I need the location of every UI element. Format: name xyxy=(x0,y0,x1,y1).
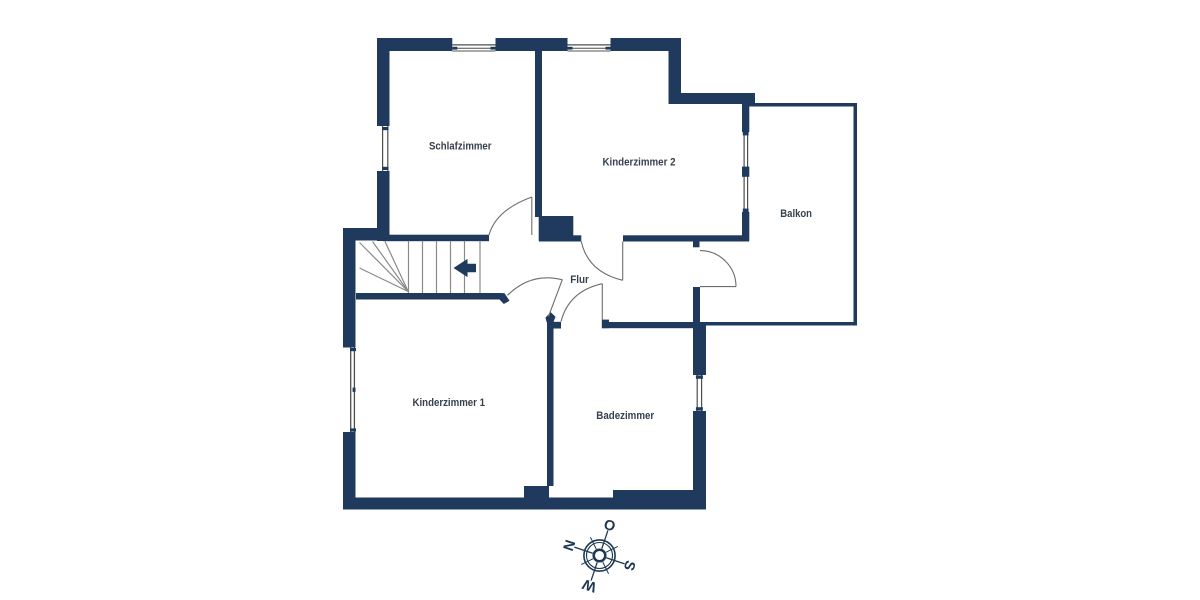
svg-text:Badezimmer: Badezimmer xyxy=(596,410,654,422)
svg-text:Kinderzimmer 2: Kinderzimmer 2 xyxy=(603,157,676,169)
svg-text:W: W xyxy=(580,575,598,595)
svg-text:Flur: Flur xyxy=(570,274,589,286)
svg-text:S: S xyxy=(620,558,638,573)
svg-text:Kinderzimmer 1: Kinderzimmer 1 xyxy=(413,397,486,409)
svg-text:Balkon: Balkon xyxy=(780,208,812,220)
svg-text:O: O xyxy=(601,517,617,536)
svg-text:N: N xyxy=(561,538,579,553)
svg-text:Schlafzimmer: Schlafzimmer xyxy=(429,141,492,153)
